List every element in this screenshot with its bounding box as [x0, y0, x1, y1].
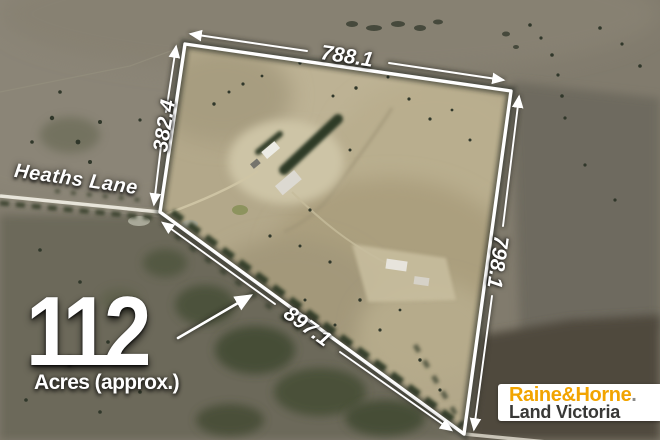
boundary-overlay — [0, 0, 660, 440]
dimension-lines — [154, 34, 519, 430]
pointer-arrow — [178, 296, 250, 338]
listing-image: 788.1 382.4 798.1 897.1 Heaths Lane 112 … — [0, 0, 660, 440]
property-boundary — [160, 44, 511, 434]
dim-bottom-segment — [340, 352, 451, 430]
brand-region: Land Victoria — [509, 404, 660, 421]
brand-dot: . — [631, 384, 636, 406]
dim-bottom-segment — [163, 223, 275, 304]
agency-logo: Raine&Horne. Land Victoria — [498, 384, 660, 421]
